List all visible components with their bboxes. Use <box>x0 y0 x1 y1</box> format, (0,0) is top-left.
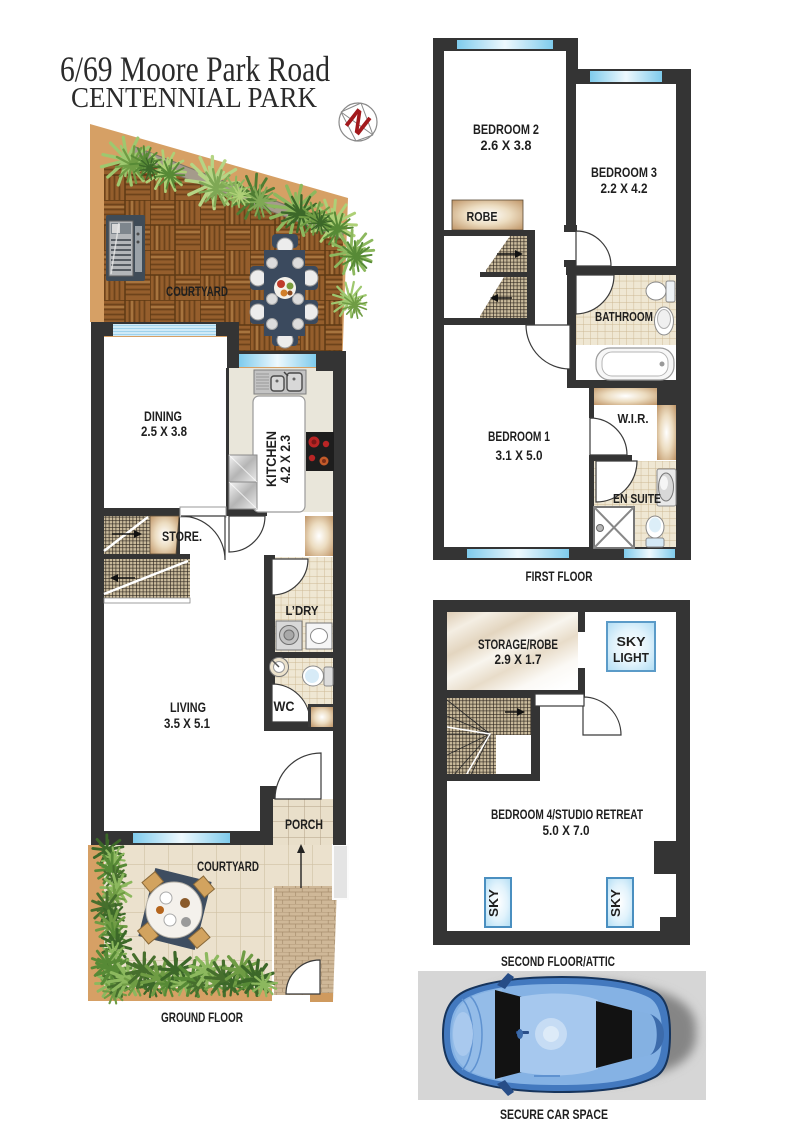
svg-text:COURTYARD: COURTYARD <box>166 284 228 299</box>
svg-text:2.6 X 3.8: 2.6 X 3.8 <box>481 138 532 153</box>
svg-text:SKY: SKY <box>609 888 623 917</box>
svg-text:STORAGE/ROBE: STORAGE/ROBE <box>478 637 558 652</box>
svg-text:KITCHEN: KITCHEN <box>264 431 279 487</box>
svg-text:5.0 X 7.0: 5.0 X 7.0 <box>543 823 590 838</box>
svg-text:BEDROOM 1: BEDROOM 1 <box>488 429 550 444</box>
svg-text:PORCH: PORCH <box>285 817 323 832</box>
svg-text:BEDROOM 4/STUDIO RETREAT: BEDROOM 4/STUDIO RETREAT <box>491 807 644 822</box>
svg-text:FIRST FLOOR: FIRST FLOOR <box>526 568 593 584</box>
svg-text:WC: WC <box>274 699 295 714</box>
svg-text:BEDROOM 2: BEDROOM 2 <box>473 122 539 137</box>
svg-text:SECOND FLOOR/ATTIC: SECOND FLOOR/ATTIC <box>501 953 615 969</box>
svg-text:3.1 X 5.0: 3.1 X 5.0 <box>496 448 543 463</box>
svg-text:BATHROOM: BATHROOM <box>595 309 653 324</box>
svg-text:4.2 X 2.3: 4.2 X 2.3 <box>278 435 293 483</box>
svg-text:LIVING: LIVING <box>170 700 206 715</box>
svg-text:2.5 X 3.8: 2.5 X 3.8 <box>141 424 187 439</box>
svg-text:SKY: SKY <box>487 888 501 917</box>
svg-text:2.2 X 4.2: 2.2 X 4.2 <box>601 181 648 196</box>
svg-text:W.I.R.: W.I.R. <box>618 412 649 426</box>
svg-text:BEDROOM 3: BEDROOM 3 <box>591 165 657 180</box>
svg-text:CENTENNIAL PARK: CENTENNIAL PARK <box>71 82 317 114</box>
svg-text:SKY: SKY <box>617 634 646 649</box>
svg-text:COURTYARD: COURTYARD <box>197 859 259 874</box>
svg-text:L’DRY: L’DRY <box>286 603 319 618</box>
svg-text:3.5 X 5.1: 3.5 X 5.1 <box>164 716 210 731</box>
svg-text:ROBE: ROBE <box>467 209 498 224</box>
svg-text:SECURE CAR SPACE: SECURE CAR SPACE <box>500 1106 608 1122</box>
svg-text:LIGHT: LIGHT <box>613 650 649 665</box>
svg-text:EN SUITE: EN SUITE <box>613 491 661 506</box>
svg-text:DINING: DINING <box>144 409 182 424</box>
svg-text:2.9 X 1.7: 2.9 X 1.7 <box>495 652 542 667</box>
svg-text:STORE.: STORE. <box>162 529 202 544</box>
svg-text:GROUND FLOOR: GROUND FLOOR <box>161 1009 243 1025</box>
